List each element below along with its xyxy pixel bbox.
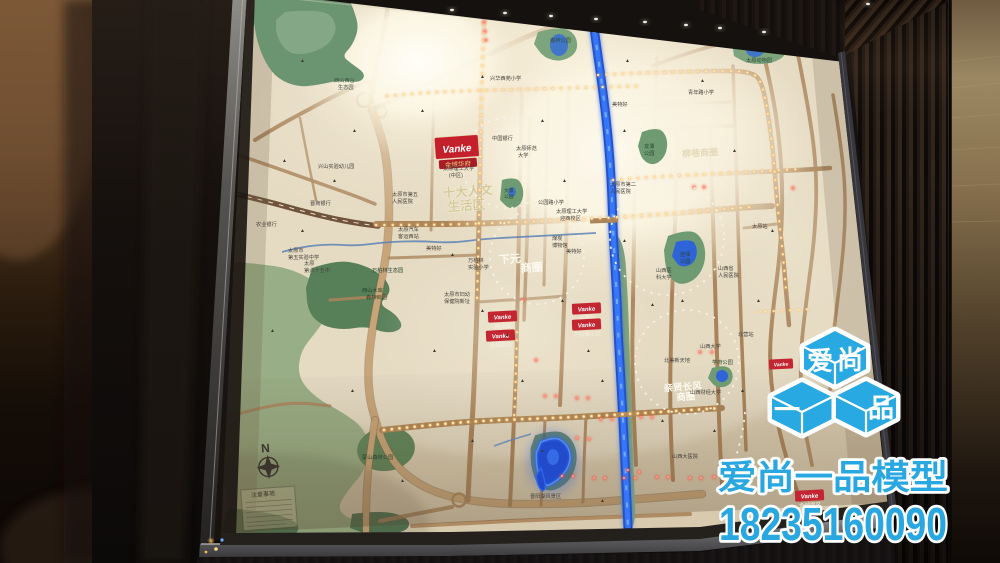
svg-text:尚: 尚 (837, 345, 863, 375)
svg-text:18235160090: 18235160090 (719, 498, 947, 550)
svg-text:爱尚一品模型: 爱尚一品模型 (718, 459, 948, 497)
svg-text:品: 品 (868, 393, 894, 423)
svg-text:爱: 爱 (807, 346, 833, 376)
svg-text:一: 一 (774, 395, 800, 425)
